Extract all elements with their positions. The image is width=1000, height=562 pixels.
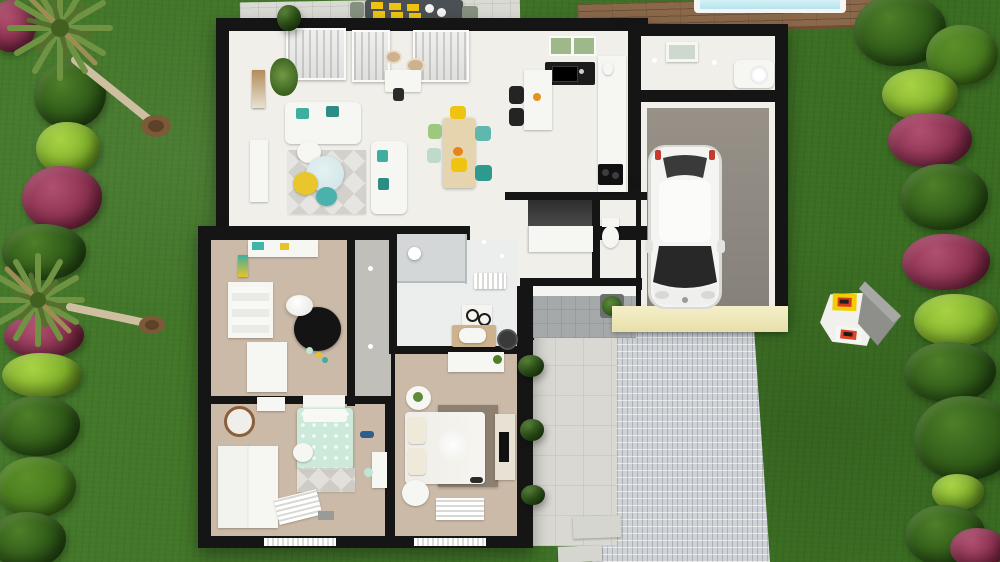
chair-yellow[interactable]: [450, 106, 466, 119]
ceiling-light: [368, 266, 373, 271]
shelf-decor-teal: [252, 242, 264, 250]
interior-wall: [389, 230, 397, 352]
playhouse-graphic: [808, 268, 924, 370]
faucet: [579, 69, 584, 74]
chair-green[interactable]: [428, 124, 442, 139]
ceiling-light: [712, 60, 717, 65]
stepping-stone: [558, 545, 603, 562]
bush[interactable]: [0, 512, 66, 562]
placemat-yellow: [373, 11, 385, 18]
interior-wall: [592, 198, 600, 286]
counter-sink-black[interactable]: [545, 62, 595, 85]
window-bench: [436, 498, 484, 520]
ceiling-light: [368, 344, 373, 349]
coffee-table-yellow[interactable]: [293, 172, 318, 195]
wall-shelf-2[interactable]: [257, 397, 285, 411]
kids-dresser[interactable]: [247, 342, 287, 392]
bush[interactable]: [902, 234, 990, 290]
vanity-basin: [459, 328, 486, 343]
bush[interactable]: [0, 396, 80, 456]
laundry-basket[interactable]: [497, 329, 518, 350]
nightstand-plant: [413, 392, 423, 402]
potted-plant[interactable]: [270, 58, 298, 96]
slippers-blue: [360, 431, 374, 438]
car[interactable]: [645, 142, 725, 312]
burner: [602, 169, 609, 176]
bush[interactable]: [900, 164, 988, 230]
interior-wall: [641, 90, 775, 102]
rain-shower-head[interactable]: [408, 247, 421, 260]
closet-doors[interactable]: [528, 226, 593, 252]
palm-tree[interactable]: [0, 0, 180, 160]
chair-mint[interactable]: [427, 148, 441, 163]
cushion-teal: [326, 106, 339, 117]
toy: [322, 357, 328, 363]
vanity-desk[interactable]: [372, 452, 387, 488]
pendant-cloud-lamp[interactable]: [286, 295, 313, 316]
tv[interactable]: [499, 432, 509, 462]
fruit-bowl: [453, 147, 463, 156]
room-hallway: [353, 238, 391, 402]
ceiling-light: [500, 254, 504, 258]
burner: [612, 172, 619, 179]
bedside-table[interactable]: [293, 443, 313, 462]
palm-tree[interactable]: [0, 245, 180, 360]
wall-art[interactable]: [252, 70, 265, 108]
window-bottom: [264, 538, 336, 546]
cushion-teal: [377, 150, 388, 162]
bush[interactable]: [0, 457, 76, 517]
toy: [316, 352, 322, 358]
kids-wall-art[interactable]: [238, 255, 248, 277]
toy: [306, 347, 313, 354]
dresser-plant: [493, 355, 502, 364]
bar-stool[interactable]: [509, 108, 524, 126]
bush[interactable]: [521, 485, 545, 505]
bush[interactable]: [914, 396, 1000, 480]
desk-chair[interactable]: [393, 88, 404, 101]
cooktop[interactable]: [598, 164, 623, 185]
interior-wall: [505, 192, 648, 200]
pillow: [408, 448, 426, 475]
cushion-teal: [378, 178, 389, 190]
shelf-decor-yellow: [280, 243, 289, 250]
placemat-yellow: [389, 3, 401, 10]
chair-yellow[interactable]: [451, 158, 467, 172]
wardrobe[interactable]: [218, 446, 278, 528]
round-mirror[interactable]: [224, 406, 255, 437]
bush[interactable]: [518, 355, 544, 377]
kitchen-window: [549, 36, 573, 56]
coffee-table-teal[interactable]: [316, 187, 337, 206]
window-bottom: [414, 538, 486, 546]
sink-bowl: [552, 66, 578, 82]
interior-wall: [347, 230, 355, 406]
outdoor-chair[interactable]: [350, 2, 364, 18]
plate: [425, 4, 434, 13]
cushion-teal: [296, 108, 309, 119]
utility-basin: [750, 66, 768, 84]
nightstand-round[interactable]: [406, 386, 431, 410]
stool-mint: [364, 468, 373, 477]
chair-teal[interactable]: [475, 165, 492, 181]
playhouse[interactable]: [808, 268, 924, 370]
toilet-bowl: [602, 226, 619, 248]
scene-3d-floorplan: [0, 0, 1000, 562]
pool[interactable]: [700, 0, 840, 9]
shower-glass: [465, 234, 467, 284]
ceiling-light: [652, 58, 657, 63]
plate: [437, 8, 446, 17]
nightstand-round-2[interactable]: [402, 480, 429, 506]
stepping-stone: [573, 515, 622, 539]
bath-mat: [462, 305, 492, 327]
placemat-yellow: [407, 4, 419, 11]
paper-towel: [603, 62, 613, 75]
bush[interactable]: [22, 166, 102, 230]
round-mat: [385, 50, 402, 64]
radiator[interactable]: [474, 273, 506, 289]
placemat-yellow: [371, 2, 383, 9]
bar-stool[interactable]: [509, 86, 524, 104]
bush[interactable]: [888, 113, 972, 167]
bush[interactable]: [914, 294, 998, 346]
ceiling-light: [482, 240, 486, 244]
fruit: [533, 93, 541, 101]
interior-wall: [203, 396, 393, 404]
bedroom-rug: [297, 468, 355, 492]
slippers: [470, 477, 483, 483]
window-living-3: [413, 30, 469, 82]
skylight: [666, 42, 698, 62]
bush[interactable]: [950, 528, 1000, 562]
closet-open-dark[interactable]: [528, 200, 592, 226]
doormat: [318, 511, 334, 520]
bed-pillow: [303, 409, 347, 422]
shower-floor: [397, 234, 467, 282]
bush[interactable]: [520, 419, 544, 441]
pillow: [408, 417, 426, 444]
chair-teal[interactable]: [475, 126, 491, 141]
bed-canopy-light: [438, 430, 468, 460]
desk-lines: [232, 287, 269, 333]
bush[interactable]: [882, 69, 958, 119]
shower-glass: [397, 281, 467, 283]
bush[interactable]: [904, 342, 996, 402]
kitchen-window: [572, 36, 596, 56]
shelf-unit[interactable]: [250, 140, 268, 202]
bush[interactable]: [277, 5, 301, 31]
